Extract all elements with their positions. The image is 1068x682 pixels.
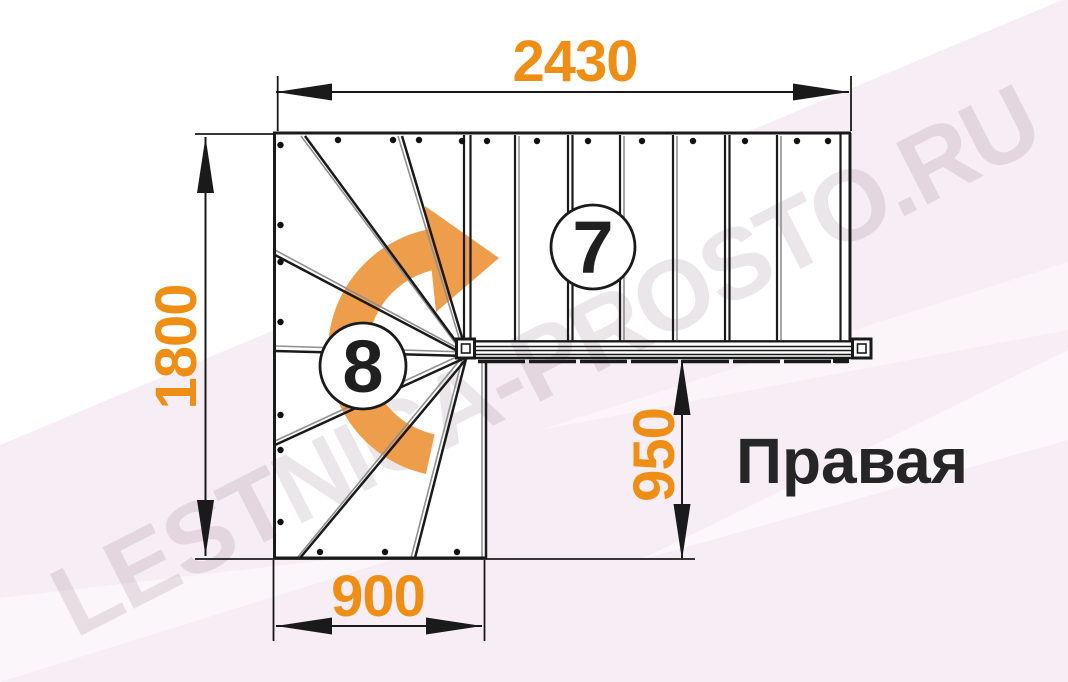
dimension-total-width: 2430 <box>475 33 675 91</box>
stair-plan-diagram: LESTNICA-PROSTO.RU <box>0 0 1068 682</box>
dimension-winder-width: 900 <box>278 568 478 626</box>
orientation-label: Правая <box>702 425 1002 497</box>
dimension-total-depth: 1800 <box>148 227 206 467</box>
straight-flight-count: 7 <box>572 206 613 289</box>
winder-count: 8 <box>342 325 383 408</box>
dimension-flight-offset: 950 <box>626 375 684 535</box>
